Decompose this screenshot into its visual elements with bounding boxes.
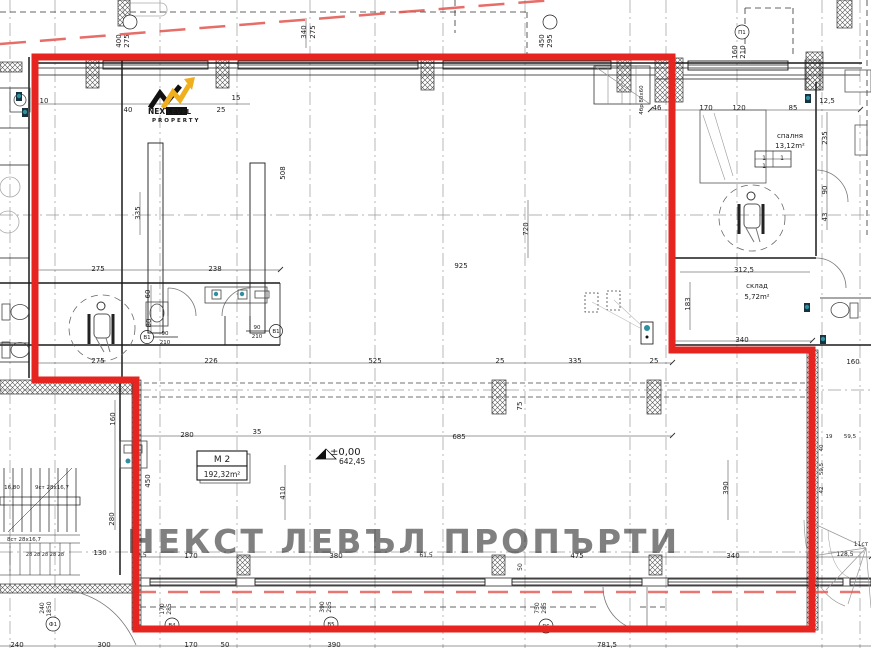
dimension-label: 238 — [208, 265, 221, 273]
dimension-label: 59,5 — [819, 462, 825, 475]
dimension-label: 160 — [109, 412, 117, 425]
dimension-label: 1 — [780, 155, 784, 162]
room-labels: спалня 13,12m² склад 5,72m² 4бр 80х60 — [639, 85, 805, 301]
door-swings — [63, 170, 848, 645]
room-area: 13,12m² — [775, 142, 805, 150]
dimension-label: 340 — [300, 25, 308, 38]
unit-label-box: М 2 192,32m² — [197, 451, 250, 483]
dimension-label: 280 — [108, 512, 116, 525]
logo-text-level: LEVEL — [167, 108, 191, 116]
red-dashed-boundary-top — [0, 0, 553, 44]
dimension-label: 130 — [93, 549, 106, 557]
dimension-label: 475 — [570, 552, 583, 560]
dimension-label: 720 — [522, 222, 530, 235]
dimension-label: 750 — [534, 602, 541, 614]
dimension-label: 28 28 28 28 28 — [26, 552, 64, 558]
dimension-label: 128,5 — [836, 551, 853, 558]
dimension-label: 925 — [454, 262, 467, 270]
dimension-label: 210 — [739, 45, 747, 58]
dimension-label: 300 — [97, 641, 110, 648]
room-name: спалня — [777, 132, 803, 140]
dimension-label: 340 — [735, 336, 748, 344]
dimension-label: 46 — [653, 104, 662, 112]
dimension-label: 8ст 28х16,7 — [7, 537, 41, 543]
dimension-label: 390 — [327, 641, 340, 648]
dimension-label: 285 — [166, 603, 173, 615]
floorplan-page: В1 90 210 В1 90 210 П1 Ф1 В4 В5 В6 спалн… — [0, 0, 871, 648]
dimension-label: 12,5 — [819, 97, 835, 105]
watermark-text: НЕКСТ ЛЕВЪЛ ПРОПЪРТИ — [127, 522, 680, 561]
wheelchair-symbol — [69, 185, 785, 361]
door-height: 210 — [252, 334, 263, 340]
dimension-label: 42 — [819, 487, 825, 494]
dimension-label: 160 — [731, 45, 739, 58]
door-height: 210 — [160, 340, 171, 346]
logo-text-property: PROPERTY — [152, 118, 200, 124]
svg-text:Ф1: Ф1 — [49, 622, 57, 628]
dimension-label: 35 — [253, 428, 262, 436]
dimension-label: 160 — [846, 358, 859, 366]
level-marker: ±0,00 642,45 — [316, 447, 365, 466]
dimension-label: 240 — [10, 641, 23, 648]
dimension-label: 340 — [726, 552, 739, 560]
dimension-label: 226 — [204, 357, 218, 365]
dimension-label: 525 — [368, 357, 381, 365]
dimension-label: 450 — [538, 34, 546, 47]
walls — [0, 57, 871, 586]
dimension-label: 59,5 — [844, 434, 857, 440]
dimension-label: 380 — [329, 552, 342, 560]
dimension-label: 60 — [144, 290, 152, 299]
unit-area: 192,32m² — [204, 470, 241, 479]
dimension-label: 90 — [821, 186, 829, 195]
dimension-label: 16,80 — [4, 485, 20, 491]
dimension-label: 400 — [115, 34, 123, 47]
dimension-label: 280 — [180, 431, 193, 439]
door-tag-labels: В1 90 210 В1 90 210 — [143, 325, 279, 346]
dimension-label: 10 — [40, 97, 49, 105]
door-tag-id: В1 — [143, 335, 150, 341]
dimension-label: 240 — [39, 602, 46, 614]
dimension-label: 275 — [91, 265, 104, 273]
dimension-label: 75 — [516, 402, 524, 411]
dimension-label: 312,5 — [734, 266, 754, 274]
dimension-label: 85 — [789, 104, 798, 112]
room-name: склад — [746, 282, 768, 290]
dimension-label: 25 — [496, 357, 505, 365]
svg-text:П1: П1 — [738, 30, 746, 36]
dimension-label: 170 — [184, 641, 197, 648]
door-width: 90 — [162, 331, 169, 337]
dimension-label: 390 — [722, 481, 730, 494]
dimension-label: 61,5 — [419, 552, 433, 559]
dimension-label: 450 — [144, 474, 152, 487]
dimension-label: 410 — [279, 486, 287, 499]
door-tag-id: В1 — [272, 329, 279, 335]
dimension-label: 285 — [326, 601, 333, 613]
dimension-label: 120 — [732, 104, 745, 112]
dimension-label: 335 — [568, 357, 581, 365]
dimension-label: 285 — [541, 602, 548, 614]
dimension-label: 183 — [684, 297, 692, 310]
dimension-label: 335 — [134, 206, 142, 219]
dimension-label: 170 — [159, 603, 166, 615]
dimension-label: 15 — [232, 94, 241, 102]
door-width: 90 — [254, 325, 261, 331]
dimension-label: 235 — [821, 131, 829, 144]
dimension-label: 80 — [145, 319, 153, 328]
dimension-label: 50 — [517, 563, 524, 571]
dimension-label: 390 — [319, 601, 326, 613]
dimension-label: 1 — [762, 163, 766, 170]
room-area: 5,72m² — [744, 293, 769, 301]
dimension-label: 1 — [762, 155, 766, 162]
dimension-label: 40 — [819, 444, 825, 451]
dimension-label: 25 — [217, 106, 226, 114]
unit-id: М 2 — [214, 455, 230, 465]
floorplan-drawing: В1 90 210 В1 90 210 П1 Ф1 В4 В5 В6 спалн… — [0, 0, 871, 648]
dimension-label: 275 — [123, 34, 131, 47]
dimension-label: 508 — [279, 166, 287, 179]
dimension-label: 1850 — [46, 601, 53, 616]
dimension-label: 40 — [124, 106, 133, 114]
dimension-label: 25 — [650, 357, 659, 365]
closet-note: 4бр 80х60 — [639, 85, 645, 115]
dimension-label: 170 — [184, 552, 197, 560]
nextlevel-logo: NEXT LEVEL PROPERTY — [148, 77, 200, 124]
dimension-label: 19 — [826, 434, 833, 440]
dimension-label: 170 — [699, 104, 712, 112]
level-absolute: 642,45 — [339, 457, 365, 466]
dimension-label: 295 — [546, 34, 554, 47]
dimension-label: 9ст 28х16,7 — [35, 485, 69, 491]
dimension-label: 275 — [91, 357, 104, 365]
dimension-label: 781,5 — [597, 641, 617, 648]
dimension-label: 11ст — [854, 541, 869, 548]
dimension-label: 685 — [452, 433, 465, 441]
dimension-label: 275 — [309, 25, 317, 38]
dimension-label: 50 — [221, 641, 230, 648]
dimension-label: 43 — [821, 213, 829, 222]
